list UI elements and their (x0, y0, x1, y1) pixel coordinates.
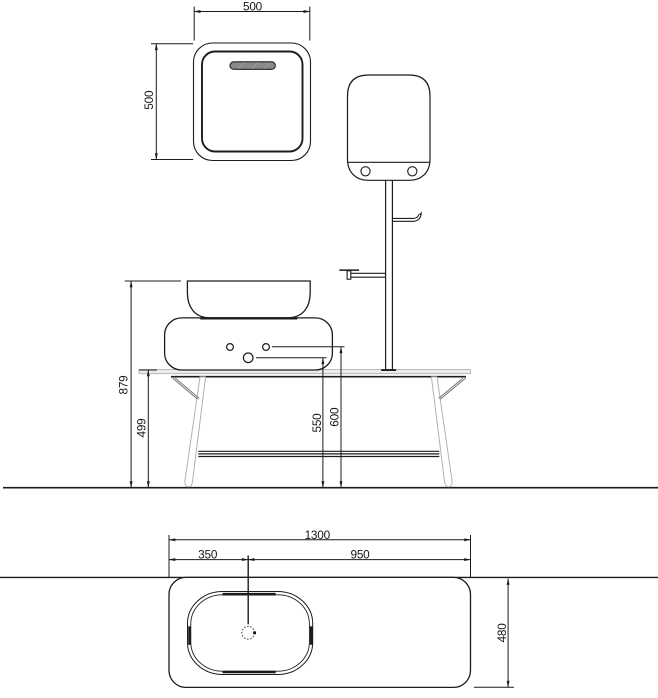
svg-text:950: 950 (350, 547, 370, 561)
svg-text:500: 500 (243, 0, 263, 13)
svg-text:879: 879 (117, 375, 131, 394)
svg-text:1300: 1300 (305, 528, 331, 542)
svg-text:480: 480 (495, 623, 509, 643)
svg-text:600: 600 (327, 407, 341, 427)
svg-text:500: 500 (142, 90, 156, 110)
svg-text:350: 350 (198, 547, 218, 561)
svg-text:550: 550 (310, 413, 324, 433)
svg-text:499: 499 (135, 418, 149, 437)
